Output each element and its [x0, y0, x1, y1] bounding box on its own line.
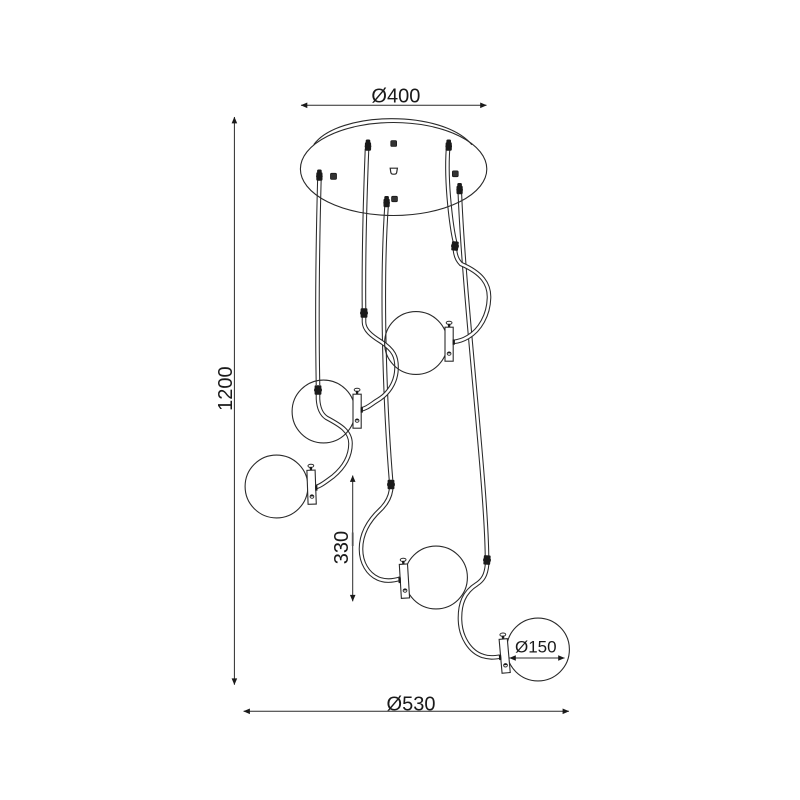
svg-text:330: 330 [331, 531, 353, 564]
svg-text:Ø400: Ø400 [371, 85, 420, 107]
svg-text:Ø530: Ø530 [387, 693, 436, 715]
svg-text:1200: 1200 [215, 366, 237, 411]
svg-text:Ø150: Ø150 [515, 638, 557, 657]
